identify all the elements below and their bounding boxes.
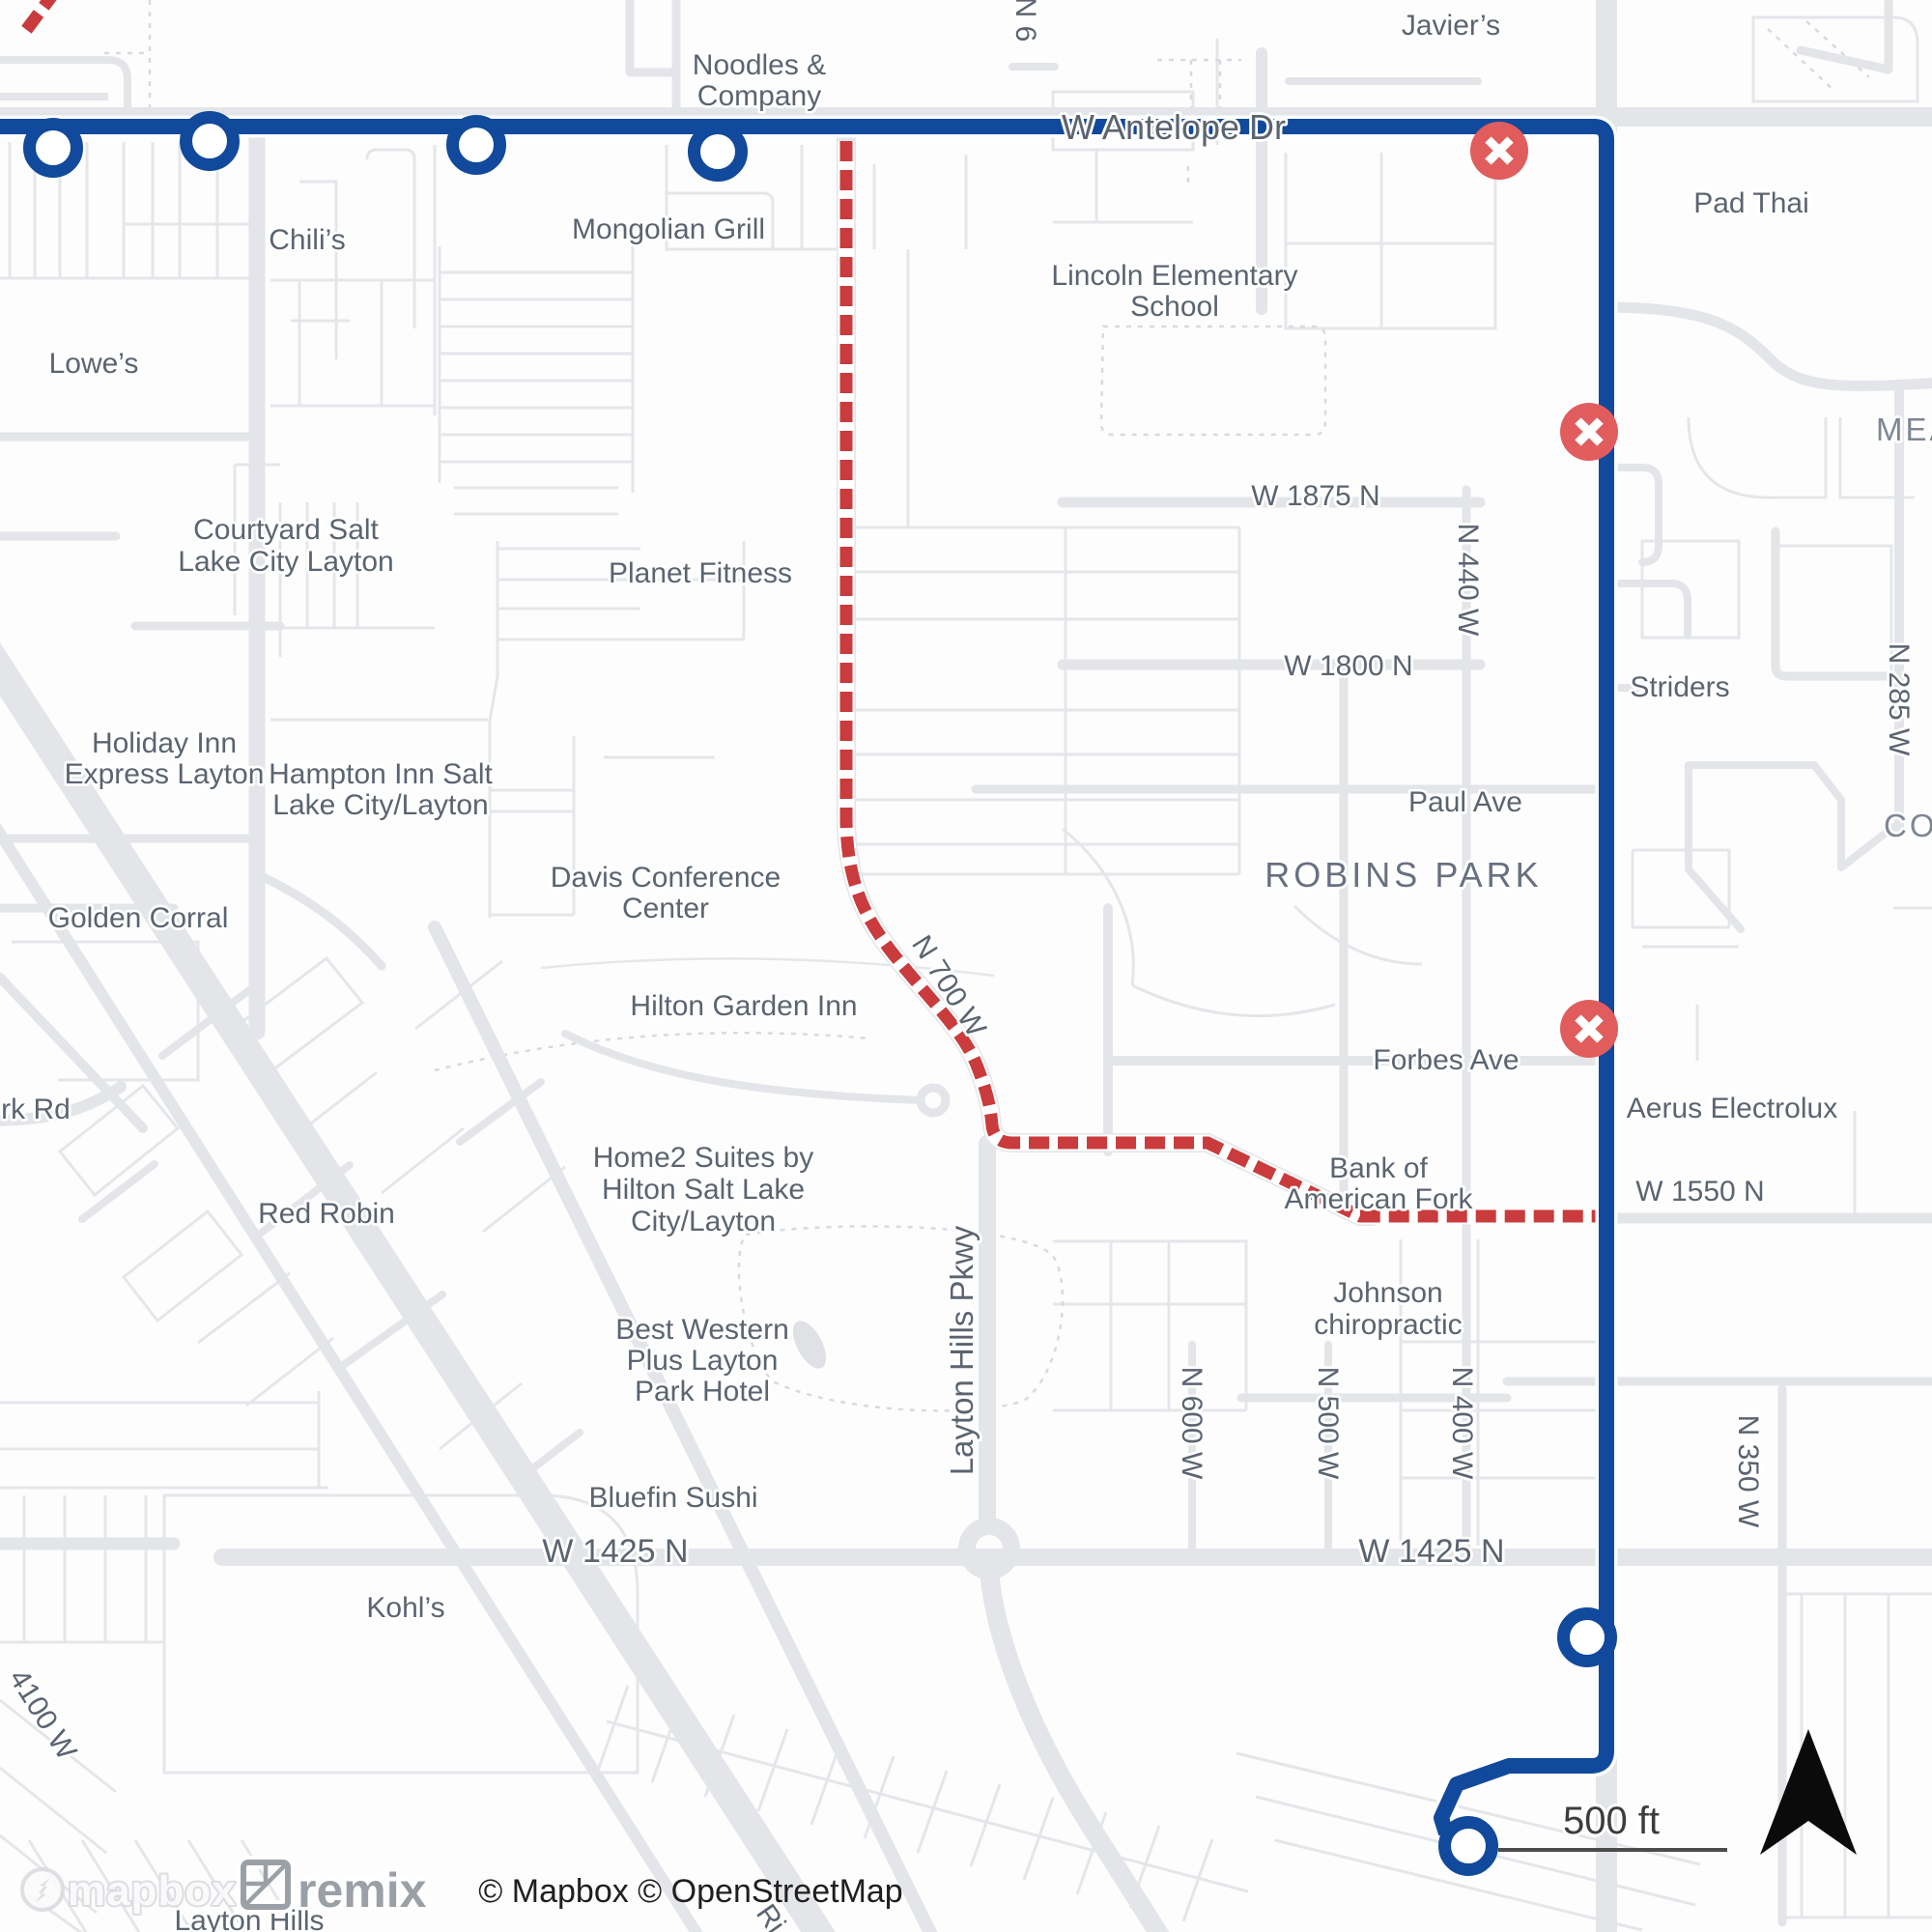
svg-text:mapbox: mapbox bbox=[68, 1867, 237, 1915]
svg-text:W 1550 N: W 1550 N bbox=[1635, 1176, 1764, 1207]
svg-text:Paul Ave: Paul Ave bbox=[1408, 786, 1522, 818]
svg-text:ROBINS PARK: ROBINS PARK bbox=[1264, 855, 1542, 895]
svg-text:Striders: Striders bbox=[1630, 671, 1729, 703]
svg-text:Forbes Ave: Forbes Ave bbox=[1373, 1044, 1519, 1076]
svg-text:Javier’s: Javier’s bbox=[1402, 10, 1500, 42]
svg-text:500 ft: 500 ft bbox=[1563, 1800, 1660, 1842]
svg-text:CO: CO bbox=[1884, 808, 1932, 843]
svg-text:Courtyard Salt: Courtyard Salt bbox=[193, 514, 379, 546]
svg-text:chiropractic: chiropractic bbox=[1314, 1309, 1462, 1341]
svg-text:Express Layton: Express Layton bbox=[65, 758, 265, 790]
svg-text:Lincoln Elementary: Lincoln Elementary bbox=[1051, 260, 1297, 292]
svg-text:N 600 W: N 600 W bbox=[1176, 1367, 1207, 1480]
svg-text:Plus Layton: Plus Layton bbox=[627, 1345, 779, 1377]
svg-text:Chili’s: Chili’s bbox=[269, 224, 345, 256]
svg-text:Noodles &: Noodles & bbox=[693, 49, 826, 81]
svg-text:Lowe’s: Lowe’s bbox=[49, 348, 139, 380]
svg-text:American Fork: American Fork bbox=[1284, 1183, 1473, 1215]
svg-text:City/Layton: City/Layton bbox=[631, 1206, 776, 1237]
svg-text:remix: remix bbox=[298, 1863, 427, 1918]
svg-text:Hilton Salt Lake: Hilton Salt Lake bbox=[602, 1174, 805, 1206]
svg-text:Johnson: Johnson bbox=[1333, 1277, 1442, 1309]
svg-text:Home2 Suites by: Home2 Suites by bbox=[593, 1142, 813, 1174]
svg-text:Best Western: Best Western bbox=[615, 1314, 789, 1346]
svg-text:Bluefin Sushi: Bluefin Sushi bbox=[588, 1482, 757, 1514]
svg-text:W 1425 N: W 1425 N bbox=[542, 1533, 688, 1570]
svg-text:N 6: N 6 bbox=[1009, 0, 1041, 42]
svg-text:Pad Thai: Pad Thai bbox=[1693, 187, 1809, 219]
svg-text:W Antelope Dr: W Antelope Dr bbox=[1062, 107, 1286, 147]
svg-text:Mongolian Grill: Mongolian Grill bbox=[572, 213, 765, 245]
svg-text:N 285 W: N 285 W bbox=[1883, 643, 1915, 756]
svg-text:Planet Fitness: Planet Fitness bbox=[609, 557, 792, 589]
svg-text:Davis Conference: Davis Conference bbox=[551, 862, 781, 894]
svg-text:Aerus Electrolux: Aerus Electrolux bbox=[1627, 1093, 1837, 1124]
svg-text:Golden Corral: Golden Corral bbox=[48, 902, 229, 934]
svg-text:N 440 W: N 440 W bbox=[1452, 524, 1484, 637]
svg-text:Lake City/Layton: Lake City/Layton bbox=[272, 789, 488, 821]
svg-text:MEA: MEA bbox=[1876, 412, 1932, 447]
svg-text:Red Robin: Red Robin bbox=[258, 1198, 395, 1230]
svg-text:© Mapbox © OpenStreetMap: © Mapbox © OpenStreetMap bbox=[478, 1873, 902, 1910]
svg-text:Kohl’s: Kohl’s bbox=[366, 1592, 444, 1624]
svg-text:Center: Center bbox=[622, 893, 709, 924]
svg-text:rk Rd: rk Rd bbox=[1, 1094, 71, 1125]
svg-text:N 350 W: N 350 W bbox=[1732, 1415, 1764, 1528]
svg-text:Holiday Inn: Holiday Inn bbox=[92, 727, 237, 759]
svg-text:Bank of: Bank of bbox=[1329, 1152, 1428, 1184]
svg-text:N 500 W: N 500 W bbox=[1312, 1367, 1344, 1480]
svg-text:W 1800 N: W 1800 N bbox=[1284, 650, 1412, 682]
svg-text:Park Hotel: Park Hotel bbox=[635, 1376, 770, 1407]
svg-text:Hampton Inn Salt: Hampton Inn Salt bbox=[269, 758, 493, 790]
svg-text:Layton Hills Pkwy: Layton Hills Pkwy bbox=[944, 1225, 980, 1475]
svg-text:N 400 W: N 400 W bbox=[1446, 1367, 1478, 1480]
svg-text:School: School bbox=[1130, 291, 1219, 323]
svg-text:W 1425 N: W 1425 N bbox=[1358, 1533, 1504, 1570]
svg-text:Lake City Layton: Lake City Layton bbox=[178, 546, 393, 578]
svg-text:Company: Company bbox=[697, 80, 821, 112]
svg-text:Hilton Garden Inn: Hilton Garden Inn bbox=[630, 990, 857, 1022]
svg-text:W 1875 N: W 1875 N bbox=[1251, 480, 1379, 512]
